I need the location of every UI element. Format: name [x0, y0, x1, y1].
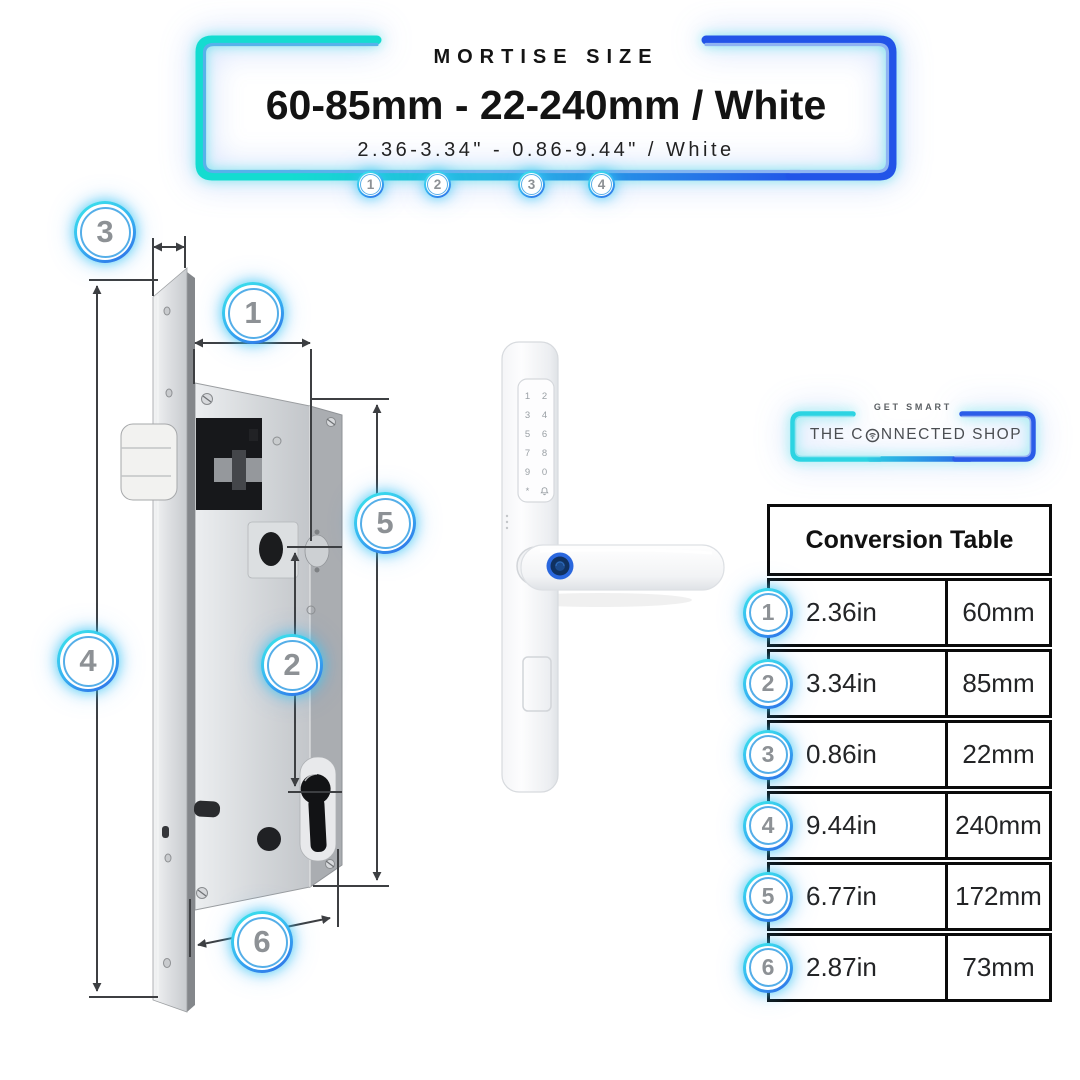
spindle-hub-hole [259, 532, 283, 566]
brand-name-suffix: NNECTED SHOP [881, 426, 1022, 444]
row-badge-1: 1 [743, 588, 793, 638]
conversion-table-title: Conversion Table [767, 504, 1052, 576]
key-0[interactable]: 0 [536, 463, 553, 482]
cell-inches: 9.44in [770, 794, 945, 857]
row-badge-5: 5 [743, 872, 793, 922]
header-kicker: MORTISE SIZE [197, 46, 895, 69]
key-7[interactable]: 7 [519, 444, 536, 463]
header-marker-1: 1 [357, 171, 384, 198]
cell-mm: 60mm [945, 581, 1049, 644]
header-marker-2: 2 [424, 171, 451, 198]
fingerprint-sensor[interactable] [547, 553, 574, 580]
cell-mm: 22mm [945, 723, 1049, 786]
latch-bolt [121, 424, 177, 500]
key-3[interactable]: 3 [519, 406, 536, 425]
callout-5: 5 [354, 492, 416, 554]
conversion-table: Conversion Table 1 2.36in 60mm 2 3.34in … [767, 504, 1052, 1002]
table-row: 1 2.36in 60mm [767, 578, 1052, 647]
cell-mm: 85mm [945, 652, 1049, 715]
cell-inches: 6.77in [770, 865, 945, 928]
cell-inches: 0.86in [770, 723, 945, 786]
callout-4: 4 [57, 630, 119, 692]
callout-6: 6 [231, 911, 293, 973]
cell-inches: 2.87in [770, 936, 945, 999]
table-row: 6 2.87in 73mm [767, 933, 1052, 1002]
callout-1: 1 [222, 282, 284, 344]
key-4[interactable]: 4 [536, 406, 553, 425]
doorbell-icon[interactable] [536, 482, 553, 501]
infographic-page: MORTISE SIZE 60-85mm - 22-240mm / White … [0, 0, 1080, 1080]
key-2[interactable]: 2 [536, 387, 553, 406]
header-subtitle: 2.36-3.34" - 0.86-9.44" / White [197, 139, 895, 162]
table-row: 5 6.77in 172mm [767, 862, 1052, 931]
key-star[interactable]: * [519, 482, 536, 501]
brand-name-prefix: THE C [810, 426, 864, 444]
header-marker-3: 3 [518, 171, 545, 198]
brand-name: THE C NNECTED SHOP [786, 426, 1046, 444]
callout-2: 2 [261, 634, 323, 696]
cell-mm: 73mm [945, 936, 1049, 999]
row-badge-2: 2 [743, 659, 793, 709]
key-6[interactable]: 6 [536, 425, 553, 444]
key-5[interactable]: 5 [519, 425, 536, 444]
key-9[interactable]: 9 [519, 463, 536, 482]
callout-3: 3 [74, 201, 136, 263]
cell-mm: 240mm [945, 794, 1049, 857]
wifi-icon [865, 428, 880, 443]
table-row: 3 0.86in 22mm [767, 720, 1052, 789]
row-badge-6: 6 [743, 943, 793, 993]
header-title: 60-85mm - 22-240mm / White [197, 82, 895, 129]
table-row: 2 3.34in 85mm [767, 649, 1052, 718]
header-marker-4: 4 [588, 171, 615, 198]
keypad[interactable]: 1 2 3 4 5 6 7 8 9 0 * [519, 387, 553, 501]
cell-inches: 3.34in [770, 652, 945, 715]
key-1[interactable]: 1 [519, 387, 536, 406]
cell-inches: 2.36in [770, 581, 945, 644]
row-badge-4: 4 [743, 801, 793, 851]
row-badge-3: 3 [743, 730, 793, 780]
table-row: 4 9.44in 240mm [767, 791, 1052, 860]
key-8[interactable]: 8 [536, 444, 553, 463]
cell-mm: 172mm [945, 865, 1049, 928]
